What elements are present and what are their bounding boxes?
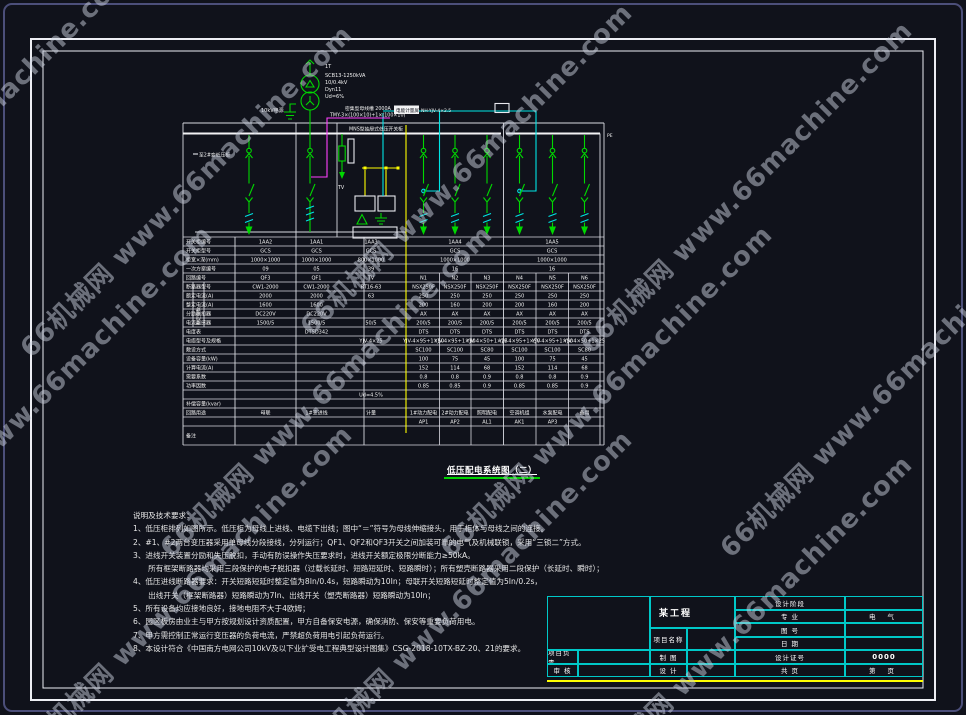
- table-cell: 0.8: [420, 374, 428, 380]
- table-cell: NSX250F: [476, 284, 499, 290]
- titleblock-cell: [687, 650, 735, 664]
- table-cell: SC100: [415, 347, 431, 353]
- busbar-label: TMY-3×(100×10)+1×(100×10): [329, 113, 405, 119]
- table-cell: 0.85: [514, 383, 525, 389]
- titleblock-cell: [578, 650, 650, 664]
- table-cell: AX: [516, 311, 523, 317]
- table-cell: 照明配电: [477, 409, 497, 416]
- table-cell: AP1: [419, 419, 429, 425]
- table-cell: GCS: [260, 248, 271, 254]
- table-cell: 800×1000: [358, 257, 384, 263]
- transformer-spec: 10/0.4kV: [325, 80, 348, 86]
- busduct-label: 密集型母线槽 2000A: [345, 105, 392, 112]
- meter-box-label: 电能计量屏: [396, 107, 419, 114]
- table-row-label: 功率因数: [186, 382, 206, 389]
- feeder-branch: [420, 135, 429, 235]
- table-cell: 50/5: [365, 320, 376, 326]
- table-cell: N5: [549, 275, 556, 281]
- table-cell: 250: [482, 293, 492, 299]
- table-cell: 1000×1000: [440, 257, 470, 263]
- table-cell: 200/5: [416, 320, 430, 326]
- table-cell: 200/5: [480, 320, 494, 326]
- table-cell: 0.9: [483, 374, 491, 380]
- table-cell: 水泵配电: [542, 409, 562, 416]
- table-cell: 152: [515, 365, 525, 371]
- table-row-label: 回路用途: [186, 409, 206, 416]
- titleblock-cell: 电 气: [845, 610, 923, 624]
- table-cell: RT16-63: [361, 284, 382, 290]
- table-cell: 68: [581, 365, 587, 371]
- feeder-branch: [581, 135, 590, 235]
- titleblock-project-name-label: 项目名称: [650, 628, 687, 650]
- table-cell: DTS: [450, 329, 460, 335]
- table-cell: 200/5: [577, 320, 591, 326]
- table-cell: 200: [515, 302, 525, 308]
- table-cell: CW1-2000: [303, 284, 329, 290]
- table-row-label: 额定电流(A): [186, 292, 213, 299]
- table-cell: 160: [450, 302, 460, 308]
- table-cell: NSX250F: [508, 284, 531, 290]
- table-cell: AP2: [450, 419, 460, 425]
- note-line: 出线开关（框架断路器）短路瞬动为7In、出线开关（塑壳断路器）短路瞬动为10In…: [133, 589, 603, 602]
- titleblock-cell: 项目负责: [547, 650, 578, 664]
- table-cell: 250: [419, 293, 429, 299]
- titleblock-cell: 日 期: [735, 637, 845, 651]
- table-side-label: 整定参数: [195, 307, 202, 325]
- pt-label: TV: [337, 185, 345, 191]
- table-cell: DTS: [514, 329, 524, 335]
- table-cell: 0.85: [418, 383, 429, 389]
- diagram-labels: 10kV电源 1T SCB13-1250kVA 10/0.4kV Dyn11 U…: [186, 64, 613, 439]
- table-cell: 1500/5: [308, 320, 326, 326]
- table-cell: 05: [313, 266, 319, 272]
- transformer-spec: SCB13-1250kVA: [325, 73, 366, 79]
- titleblock-cell: 审 核: [547, 664, 578, 678]
- table-cell: AX: [452, 311, 459, 317]
- cad-sheet: { "watermark": { "text": "66机械网 www.66ma…: [0, 0, 966, 715]
- table-cell: SC100: [511, 347, 527, 353]
- table-cell: 备用: [579, 409, 589, 416]
- table-cell: YJV-4×50+1×25: [563, 338, 605, 344]
- table-cell: 100: [419, 356, 429, 362]
- table-cell: 1000×1000: [251, 257, 281, 263]
- table-row-label: 敷设方式: [186, 346, 206, 353]
- table-cell: N6: [581, 275, 588, 281]
- table-cell: 0.9: [581, 374, 589, 380]
- titleblock-cell: 设 计: [650, 664, 687, 678]
- table-cell: 45: [484, 356, 490, 362]
- table-cell: 0.85: [547, 383, 558, 389]
- table-cell: 200/5: [512, 320, 526, 326]
- table-cell: AK1: [515, 419, 525, 425]
- table-cell: 45: [581, 356, 587, 362]
- table-cell: DTSD342: [305, 329, 328, 335]
- table-cell: 计量: [366, 409, 376, 416]
- table-cell: AX: [420, 311, 427, 317]
- table-cell: NSX250F: [412, 284, 435, 290]
- table-cell: TV: [367, 275, 375, 281]
- title-block-underline: [547, 680, 923, 682]
- table-cell: 09: [262, 266, 268, 272]
- table-cell: 1600: [310, 302, 323, 308]
- table-cell: 0.9: [483, 383, 491, 389]
- table-cell: 1AA2: [259, 239, 272, 245]
- titleblock-cell: 0000: [845, 650, 923, 664]
- table-cell: SC80: [578, 347, 591, 353]
- table-cell: 114: [450, 365, 460, 371]
- note-line: 5、所有设备均应接地良好，接地电阻不大于4欧姆；: [133, 602, 603, 615]
- table-cell: DTS: [482, 329, 492, 335]
- table-cell: 114: [548, 365, 558, 371]
- table-cell: 0.8: [549, 374, 557, 380]
- feeder-branch: [516, 135, 525, 235]
- titleblock-cell: 专 业: [735, 610, 845, 624]
- table-cell: QF3: [261, 275, 271, 281]
- table-row-label: 一次方案编号: [186, 265, 216, 272]
- cabinet-label: MNS型抽屉式低压开关柜: [349, 126, 403, 133]
- titleblock-project-name-value: [687, 628, 735, 650]
- table-cell: 200: [482, 302, 492, 308]
- pe-label: PE: [607, 133, 613, 139]
- table-cell: Ud=4.5%: [359, 392, 383, 398]
- table-cell: SC100: [447, 347, 463, 353]
- table-cell: 200: [580, 302, 590, 308]
- titleblock-cell: [687, 664, 735, 678]
- table-cell: AX: [549, 311, 556, 317]
- note-line: 7、甲方需控制正常运行变压器的负荷电流，严禁超负荷用电引起负荷运行。: [133, 629, 603, 642]
- titleblock-cell: 第 页: [845, 664, 923, 678]
- notes-lines: 1、低压柜排列如图所示。低压柜为母线上进线、电缆下出线；图中“＝”符号为母线伸缩…: [133, 522, 603, 655]
- table-cell: 75: [452, 356, 458, 362]
- table-cell: 100: [515, 356, 525, 362]
- table-row-label: 电度表: [186, 328, 201, 335]
- note-line: 6、园区板房由业主与甲方按规划设计资质配置，甲方自备保安电源，确保消防、保安等重…: [133, 615, 603, 628]
- table-cell: 1AA4: [448, 239, 461, 245]
- table-cell: 1000×1000: [537, 257, 567, 263]
- table-cell: N4: [516, 275, 523, 281]
- table-cell: GCS: [311, 248, 322, 254]
- table-cell: DTS: [547, 329, 557, 335]
- table-cell: 39: [368, 266, 374, 272]
- titleblock-cell: [578, 664, 650, 678]
- table-row-label: 开关柜型号: [186, 247, 211, 254]
- titleblock-cell: 图 号: [735, 623, 845, 637]
- pt-fuse-branch: [339, 134, 354, 179]
- table-cell: N1: [420, 275, 427, 281]
- table-cell: DTS: [579, 329, 589, 335]
- table-cell: DC220V: [255, 311, 276, 317]
- table-cell: QF1: [312, 275, 322, 281]
- tie-label: 至2#变低压柜: [199, 152, 230, 159]
- table-cell: 63: [368, 293, 374, 299]
- table-cell: 200: [419, 302, 429, 308]
- table-row-label: 需要系数: [186, 373, 206, 380]
- notes-header: 说明及技术要求：: [133, 509, 603, 522]
- titleblock-cell: [845, 623, 923, 637]
- table-cell: 2000: [310, 293, 323, 299]
- table-cell: 0.8: [451, 374, 459, 380]
- table-cell: NSX250F: [444, 284, 467, 290]
- table-cell: 空调机组: [509, 409, 529, 416]
- table-cell: GCS: [366, 248, 377, 254]
- table-cell: 160: [548, 302, 558, 308]
- table-cell: 250: [580, 293, 590, 299]
- table-cell: GCS: [450, 248, 461, 254]
- table-cell: SC100: [544, 347, 560, 353]
- table-cell: N2: [452, 275, 459, 281]
- table-cell: 1#变进线: [305, 409, 327, 416]
- metering-section: [353, 167, 400, 239]
- table-cell: 250: [515, 293, 525, 299]
- feeder-branch: [483, 135, 492, 235]
- titleblock-cell: 设计阶段: [735, 596, 845, 610]
- titleblock-cell: 制 图: [650, 650, 687, 664]
- table-cell: NSX250F: [573, 284, 596, 290]
- table-cell: 152: [419, 365, 429, 371]
- table-cell: 200/5: [448, 320, 462, 326]
- table-cell: 75: [549, 356, 555, 362]
- table-cell: AX: [484, 311, 491, 317]
- control-cable-label: NH-YJV-4×2.5: [421, 108, 451, 114]
- feeder-branch: [549, 135, 558, 235]
- table-cell: 1AA3: [364, 239, 377, 245]
- note-line: 3、进线开关装置分励和失压脱扣，手动有防误操作失压要求时，进线开关额定极限分断能…: [133, 549, 603, 562]
- table-cell: 1500/5: [257, 320, 275, 326]
- table-cell: GCS: [547, 248, 558, 254]
- note-line: 所有框架断路器均采用三段保护的电子脱扣器（过载长延时、短路短延时、短路瞬时）；所…: [133, 562, 603, 575]
- table-row-label: 备注: [186, 432, 196, 439]
- drawing-title: 低压配电系统图（二）: [444, 464, 540, 479]
- table-cell: 250: [548, 293, 558, 299]
- transformer-symbol: [284, 60, 319, 135]
- table-cell: 1AA1: [310, 239, 323, 245]
- transformer-tag: 1T: [325, 64, 332, 70]
- table-cell: 250: [450, 293, 460, 299]
- table-cell: AL1: [482, 419, 491, 425]
- note-line: 4、低压进线断路器要求：开关短路短延时整定值为8In/0.4s，短路瞬动为10I…: [133, 575, 603, 588]
- table-row-label: 开关柜编号: [186, 238, 211, 245]
- table-cell: 2000: [259, 293, 272, 299]
- table-cell-texts: 开关柜编号1AA21AA11AA31AA41AA5开关柜型号GCSGCSGCSG…: [186, 238, 605, 439]
- main-breaker: [306, 135, 315, 232]
- table-cell: DC220V: [306, 311, 327, 317]
- table-cell: 母联: [260, 409, 270, 416]
- table-row-label: 回路编号: [186, 274, 206, 281]
- table-row-label: 计算电流(A): [186, 364, 213, 371]
- table-row-label: 断路器型号: [186, 283, 211, 290]
- notes-block: 说明及技术要求： 1、低压柜排列如图所示。低压柜为母线上进线、电缆下出线；图中“…: [133, 509, 603, 655]
- table-cell: CW1-2000: [252, 284, 278, 290]
- table-cell: 0.8: [516, 374, 524, 380]
- table-cell: 200/5: [545, 320, 559, 326]
- titleblock-logo-cell: [547, 596, 650, 650]
- table-cell: NSX250F: [541, 284, 564, 290]
- note-line: 1、低压柜排列如图所示。低压柜为母线上进线、电缆下出线；图中“＝”符号为母线伸缩…: [133, 522, 603, 535]
- table-row-label: 设备容量(kW): [186, 355, 218, 362]
- table-cell: 2#动力配电: [441, 409, 468, 416]
- table-cell: 16: [452, 266, 458, 272]
- incoming-label: 10kV电源: [261, 107, 284, 114]
- feeder-branches: [245, 135, 590, 235]
- table-row-label: 补偿容量(kvar): [186, 400, 221, 407]
- table-cell: 16: [549, 266, 555, 272]
- table-cell: 0.85: [449, 383, 460, 389]
- table-cell: 68: [484, 365, 490, 371]
- titleblock-cell: 设计证号: [735, 650, 845, 664]
- titleblock-cell: [845, 637, 923, 651]
- table-row-label: 柜宽×深(mm): [186, 256, 219, 263]
- feeder-branch: [451, 135, 460, 235]
- note-line: 2、#1、#2两台变压器采用单母线分段接线，分列运行；QF1、QF2和QF3开关…: [133, 536, 603, 549]
- note-line: 8、本设计符合《中国南方电网公司10kV及以下业扩受电工程典型设计图集》CSG-…: [133, 642, 603, 655]
- table-cell: N3: [484, 275, 491, 281]
- titleblock-project: 某工程: [650, 596, 735, 628]
- table-row-label: 电缆型号及规格: [186, 337, 221, 344]
- table-cell: DTS: [418, 329, 428, 335]
- table-cell: YJV-4×25: [358, 338, 382, 344]
- table-cell: AP3: [548, 419, 558, 425]
- titleblock-cell: 共 页: [735, 664, 845, 678]
- table-cell: 1#动力配电: [410, 409, 437, 416]
- table-cell: AX: [581, 311, 588, 317]
- titleblock-cell: [845, 596, 923, 610]
- transformer-spec: Ud=6%: [325, 94, 344, 100]
- table-cell: SC80: [480, 347, 493, 353]
- table-cell: 0.9: [581, 383, 589, 389]
- table-cell: 1AA5: [545, 239, 558, 245]
- transformer-spec: Dyn11: [325, 87, 341, 93]
- feeder-branch: [245, 135, 254, 235]
- table-cell: 1000×1000: [302, 257, 332, 263]
- table-cell: 1600: [259, 302, 272, 308]
